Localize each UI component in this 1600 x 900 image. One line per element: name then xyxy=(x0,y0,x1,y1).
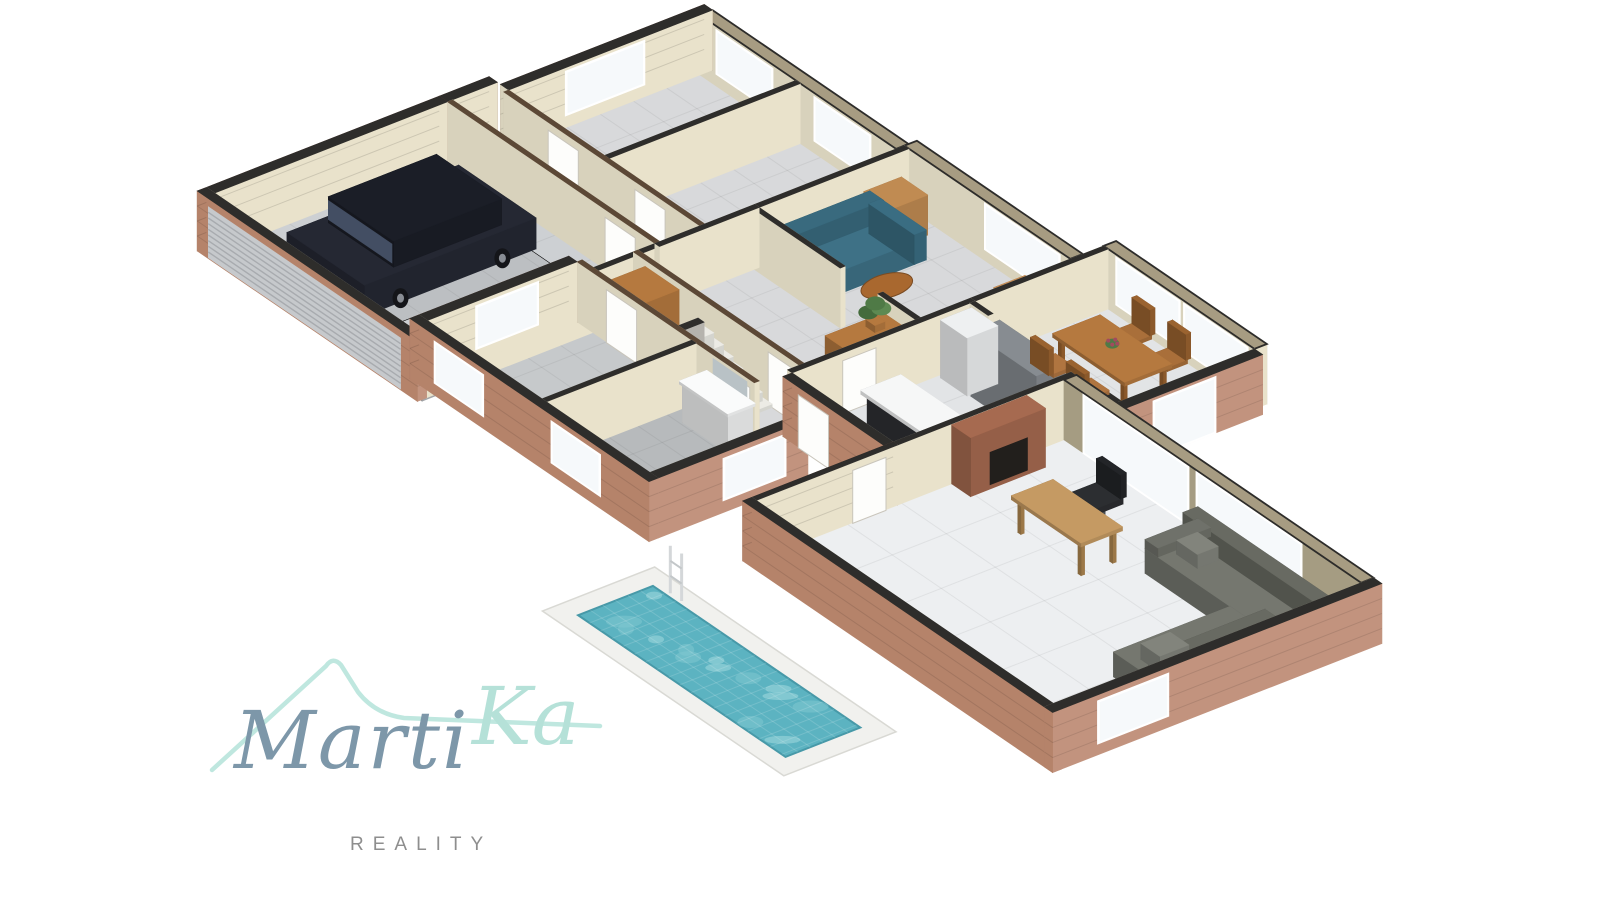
flower-centerpiece xyxy=(1105,338,1119,349)
logo-text-ka: Ka xyxy=(472,670,579,763)
fridge xyxy=(941,308,998,396)
logo-text-reality: REALITY xyxy=(350,834,492,856)
logo-text-marti: Marti xyxy=(234,694,470,787)
martika-reality-logo: Marti Ka REALITY xyxy=(200,648,620,893)
page-canvas: { "page": {"width": 1600, "height": 900,… xyxy=(0,0,1600,900)
